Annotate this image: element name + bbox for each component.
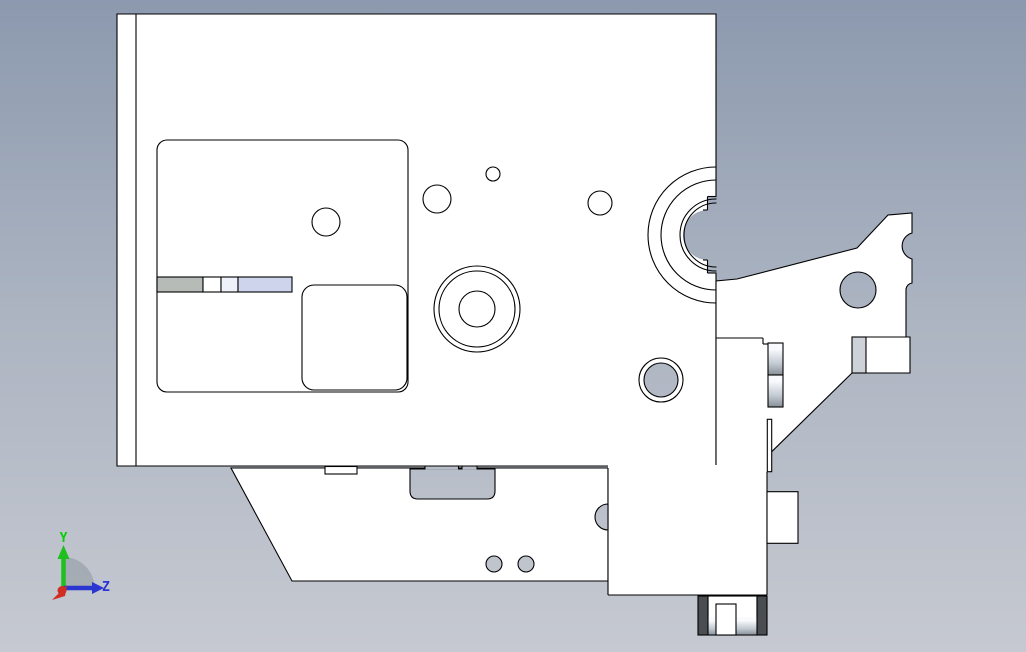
axis-label-y: Y [60, 531, 68, 546]
axis-label-z: Z [102, 580, 110, 595]
foot-pillar [716, 604, 736, 635]
pedestal-hole-1 [486, 556, 502, 572]
slide-bar-lavender [238, 277, 292, 292]
pedestal-hole-2 [518, 556, 534, 572]
slide-bar-cell-1 [203, 277, 221, 292]
shaft-strip-upper [768, 343, 783, 375]
cad-scene: Y Z [0, 0, 1026, 652]
cad-viewport[interactable]: Y Z [0, 0, 1026, 652]
slot-recess-b [462, 467, 477, 470]
edge-sliver [767, 419, 771, 471]
slot-recess-a [425, 467, 459, 470]
foot-pad-right [757, 596, 767, 635]
side-tab [767, 492, 798, 544]
slide-bar-cell-2 [221, 277, 238, 292]
arm-plate-band [852, 337, 866, 373]
slide-bar-gray [157, 277, 203, 292]
main-body [117, 14, 716, 466]
pocket-rounded-rect-small [302, 285, 407, 390]
foot-metal-right [736, 617, 757, 635]
shaft-strip-lower [768, 375, 783, 407]
part-drawing [0, 0, 1026, 652]
pedestal-notch [325, 467, 357, 475]
pedestal-slot [410, 469, 495, 499]
arm-hole [840, 272, 876, 308]
foot-pad-left [698, 596, 708, 635]
side-hole [644, 363, 678, 397]
support-block [608, 465, 767, 595]
foot-metal-left [708, 617, 716, 635]
